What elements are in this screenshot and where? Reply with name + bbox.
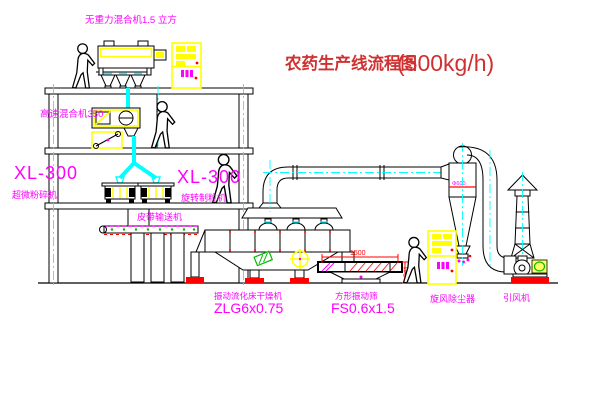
label-fan-name: 引风机 xyxy=(503,292,530,303)
label-screen-model: FS0.6x1.5 xyxy=(331,300,395,316)
granulator-right xyxy=(138,177,174,203)
y-chute-pipe xyxy=(120,136,156,178)
worker-icon xyxy=(152,102,175,148)
label-belt-conveyor: 皮带输送机 xyxy=(137,211,182,222)
gravity-free-mixer xyxy=(96,41,166,88)
diagram-title: 农药生产线流程图 (500kg/h) xyxy=(284,50,494,76)
induced-draft-fan xyxy=(504,256,549,283)
label-pulverizer-model: XL-300 xyxy=(14,163,78,183)
cabinet-indicator-icons xyxy=(181,70,193,77)
title-capacity: (500kg/h) xyxy=(397,50,494,76)
worker-icon xyxy=(73,44,95,88)
worker-icon xyxy=(404,237,427,282)
dim-screen-length: 1500 xyxy=(350,250,366,257)
control-cabinet-ground xyxy=(428,231,456,284)
label-high-speed-mixer: 高速混合机350 xyxy=(40,108,103,120)
label-granulator-model: XL-300 xyxy=(177,167,241,187)
cabinet-indicator-icons xyxy=(437,262,449,269)
cyclone-marking: Φ600 xyxy=(452,181,466,187)
exhaust-duct xyxy=(263,160,455,212)
control-cabinet-roof xyxy=(172,43,201,88)
label-top-mixer: 无重力混合机1.5 立方 xyxy=(85,14,177,26)
diagram-svg: Φ600 xyxy=(0,0,600,403)
belt-conveyor xyxy=(100,226,199,282)
label-pulverizer-name: 超微粉碎机 xyxy=(12,189,57,200)
label-dryer-model: ZLG6x0.75 xyxy=(214,300,283,316)
mixer-hoppers xyxy=(101,74,145,89)
granulator-left xyxy=(102,177,138,203)
label-granulator-name: 旋转制粒机 xyxy=(181,192,226,203)
dryer-domes xyxy=(259,219,333,230)
label-cyclone-name: 旋风除尘器 xyxy=(430,293,475,304)
cad-flow-diagram: Φ600 xyxy=(0,0,600,403)
